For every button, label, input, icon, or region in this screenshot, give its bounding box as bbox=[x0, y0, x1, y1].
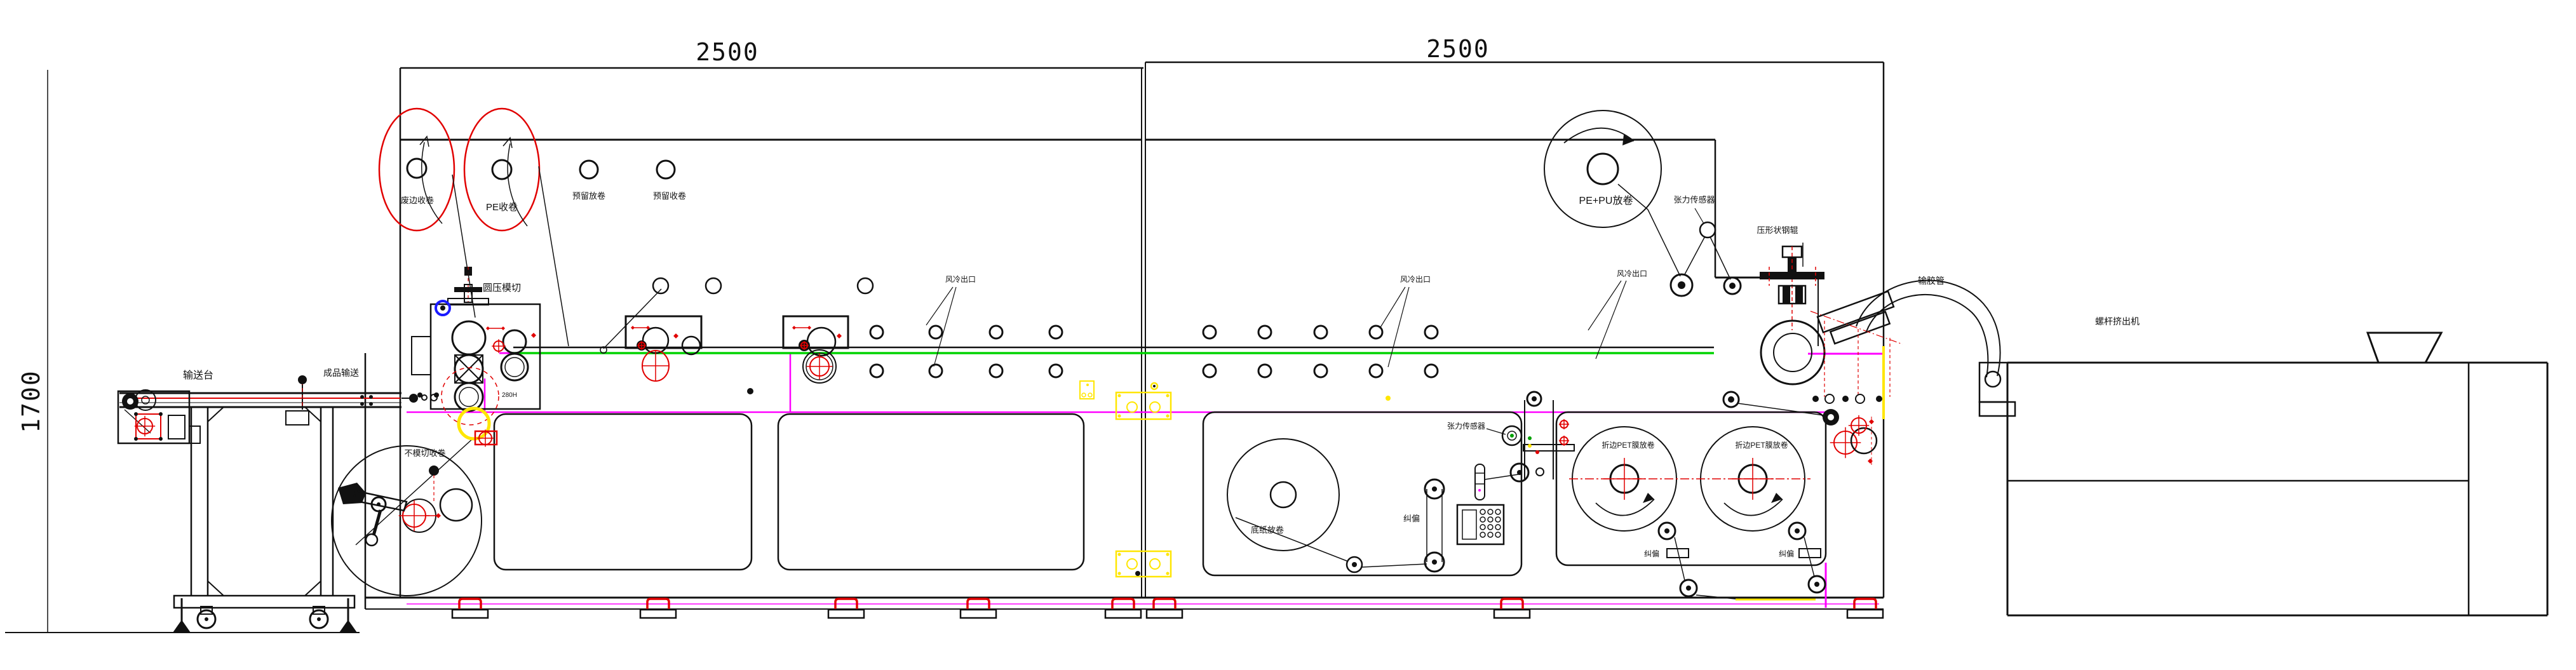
label-glue-tube: 输胶管 bbox=[1918, 276, 1945, 286]
label-air-2: 风冷出口 bbox=[1400, 275, 1431, 284]
dim-2500-right: 2500 bbox=[1426, 35, 1490, 63]
dim-2500-left: 2500 bbox=[696, 38, 759, 66]
label-extruder: 螺杆挤出机 bbox=[2095, 316, 2140, 326]
label-pet-1: 折边PET膜放卷 bbox=[1602, 440, 1654, 450]
label-pet-2: 折边PET膜放卷 bbox=[1735, 440, 1788, 450]
label-conveyor: 输送台 bbox=[183, 370, 213, 381]
label-guide-3: 纠偏 bbox=[1779, 549, 1794, 558]
label-air-3: 风冷出口 bbox=[1617, 269, 1647, 278]
machine-foot bbox=[828, 610, 864, 618]
machine-foot bbox=[1147, 610, 1182, 618]
machine-foot bbox=[452, 610, 488, 618]
label-rotary-die-cut: 圆压模切 bbox=[483, 283, 521, 293]
label-press-roller: 压形状钢辊 bbox=[1757, 225, 1798, 235]
label-product-out: 成品输送 bbox=[323, 368, 359, 378]
label-waste-edge-rewind: 废边收卷 bbox=[401, 196, 434, 205]
dim-1700: 1700 bbox=[17, 370, 45, 433]
label-280h: 280H bbox=[502, 392, 517, 399]
label-non-diecut: 不模切收卷 bbox=[404, 448, 445, 458]
label-pepu-unwind: PE+PU放卷 bbox=[1579, 195, 1633, 206]
machine-foot bbox=[961, 610, 996, 618]
machine-foot bbox=[1847, 610, 1883, 618]
machine-foot bbox=[1105, 610, 1141, 618]
label-air-1: 风冷出口 bbox=[945, 275, 976, 284]
label-guide-2: 纠偏 bbox=[1644, 549, 1659, 558]
label-guide-1: 纠偏 bbox=[1403, 514, 1420, 523]
label-reserved-rewind: 预留收卷 bbox=[653, 191, 686, 201]
machine-foot bbox=[640, 610, 676, 618]
label-base-paper: 底纸放卷 bbox=[1251, 525, 1284, 535]
machine-foot bbox=[1494, 610, 1530, 618]
label-pe-rewind: PE收卷 bbox=[486, 202, 518, 213]
label-reserved-unwind: 预留放卷 bbox=[572, 191, 605, 201]
machine-layout-drawing: 250025001700废边收卷PE收卷预留放卷预留收卷圆压模切280H风冷出口… bbox=[0, 0, 2576, 670]
label-tension-2: 张力传感器 bbox=[1447, 421, 1485, 431]
label-tension-1: 张力传感器 bbox=[1673, 195, 1715, 204]
cad-canvas: 250025001700废边收卷PE收卷预留放卷预留收卷圆压模切280H风冷出口… bbox=[0, 0, 2576, 670]
